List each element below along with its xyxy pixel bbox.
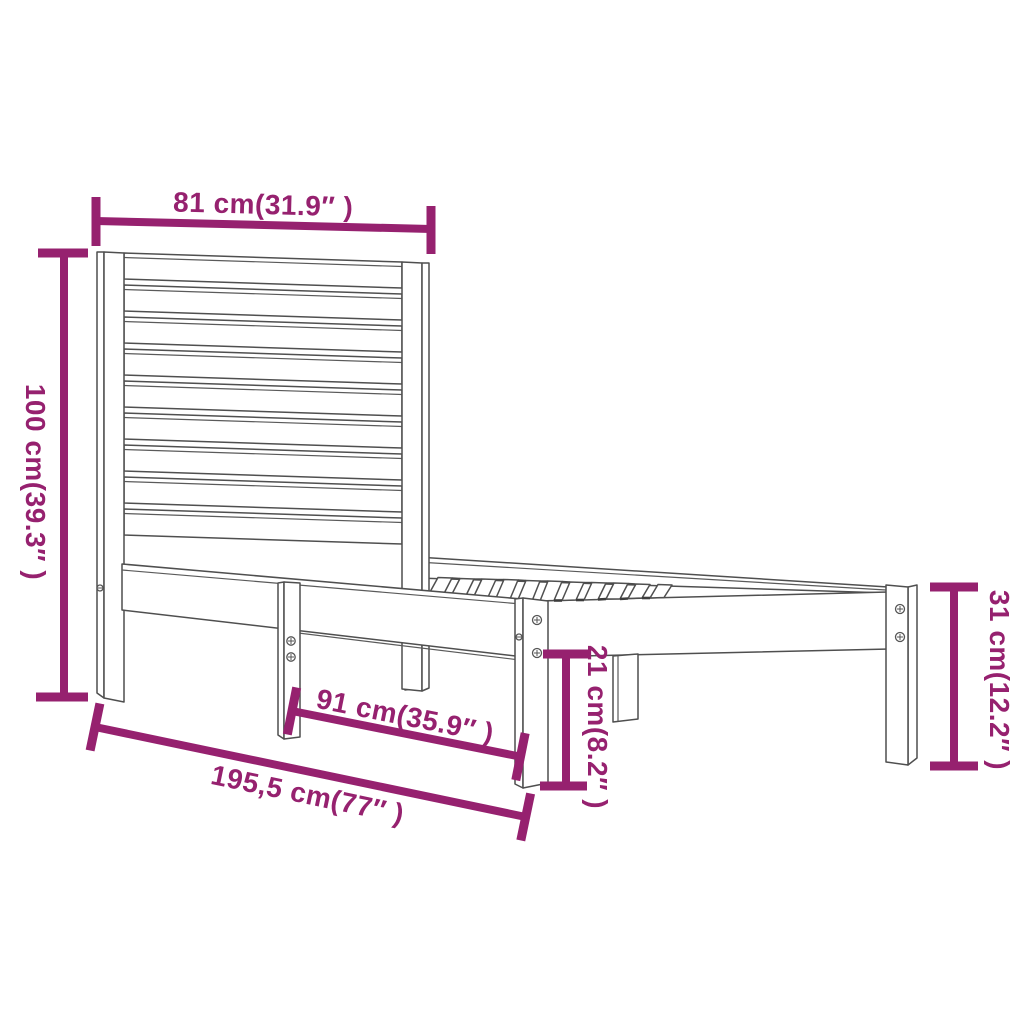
headboard-left-post [97,252,124,702]
screw-icon [533,649,542,658]
dimension-under-rail-height: 21 cm(8.2″ ) [540,645,613,809]
dimension-headboard-width: 81 cm(31.9″ ) [96,186,431,254]
bed-frame-illustration [97,252,917,788]
screw-icon [97,585,103,591]
dimension-foot-height: 31 cm(12.2″ ) [930,587,1015,770]
dimension-label-headboard-width: 81 cm(31.9″ ) [173,186,354,222]
far-middle-leg [613,654,638,722]
dimension-label-under-rail-height: 21 cm(8.2″ ) [582,645,613,809]
screw-icon [287,653,295,661]
dimension-mid-leg-to-foot: 91 cm(35.9″ ) [287,679,527,781]
screw-icon [533,616,542,625]
dimension-headboard-height: 100 cm(39.3″ ) [20,253,88,697]
screw-icon [896,633,905,642]
dimension-label-mid-leg-to-foot: 91 cm(35.9″ ) [314,683,497,749]
screw-icon [516,634,522,640]
screw-icon [287,637,295,645]
dimension-label-headboard-height: 100 cm(39.3″ ) [20,384,51,580]
diagram-canvas: 81 cm(31.9″ ) 100 cm(39.3″ ) 31 cm(12.2″… [0,0,1024,1024]
screw-icon [896,605,905,614]
headboard-slats [124,253,402,544]
bed-frame-dimension-diagram: 81 cm(31.9″ ) 100 cm(39.3″ ) 31 cm(12.2″… [0,0,1024,1024]
dimension-label-foot-height: 31 cm(12.2″ ) [984,590,1015,770]
